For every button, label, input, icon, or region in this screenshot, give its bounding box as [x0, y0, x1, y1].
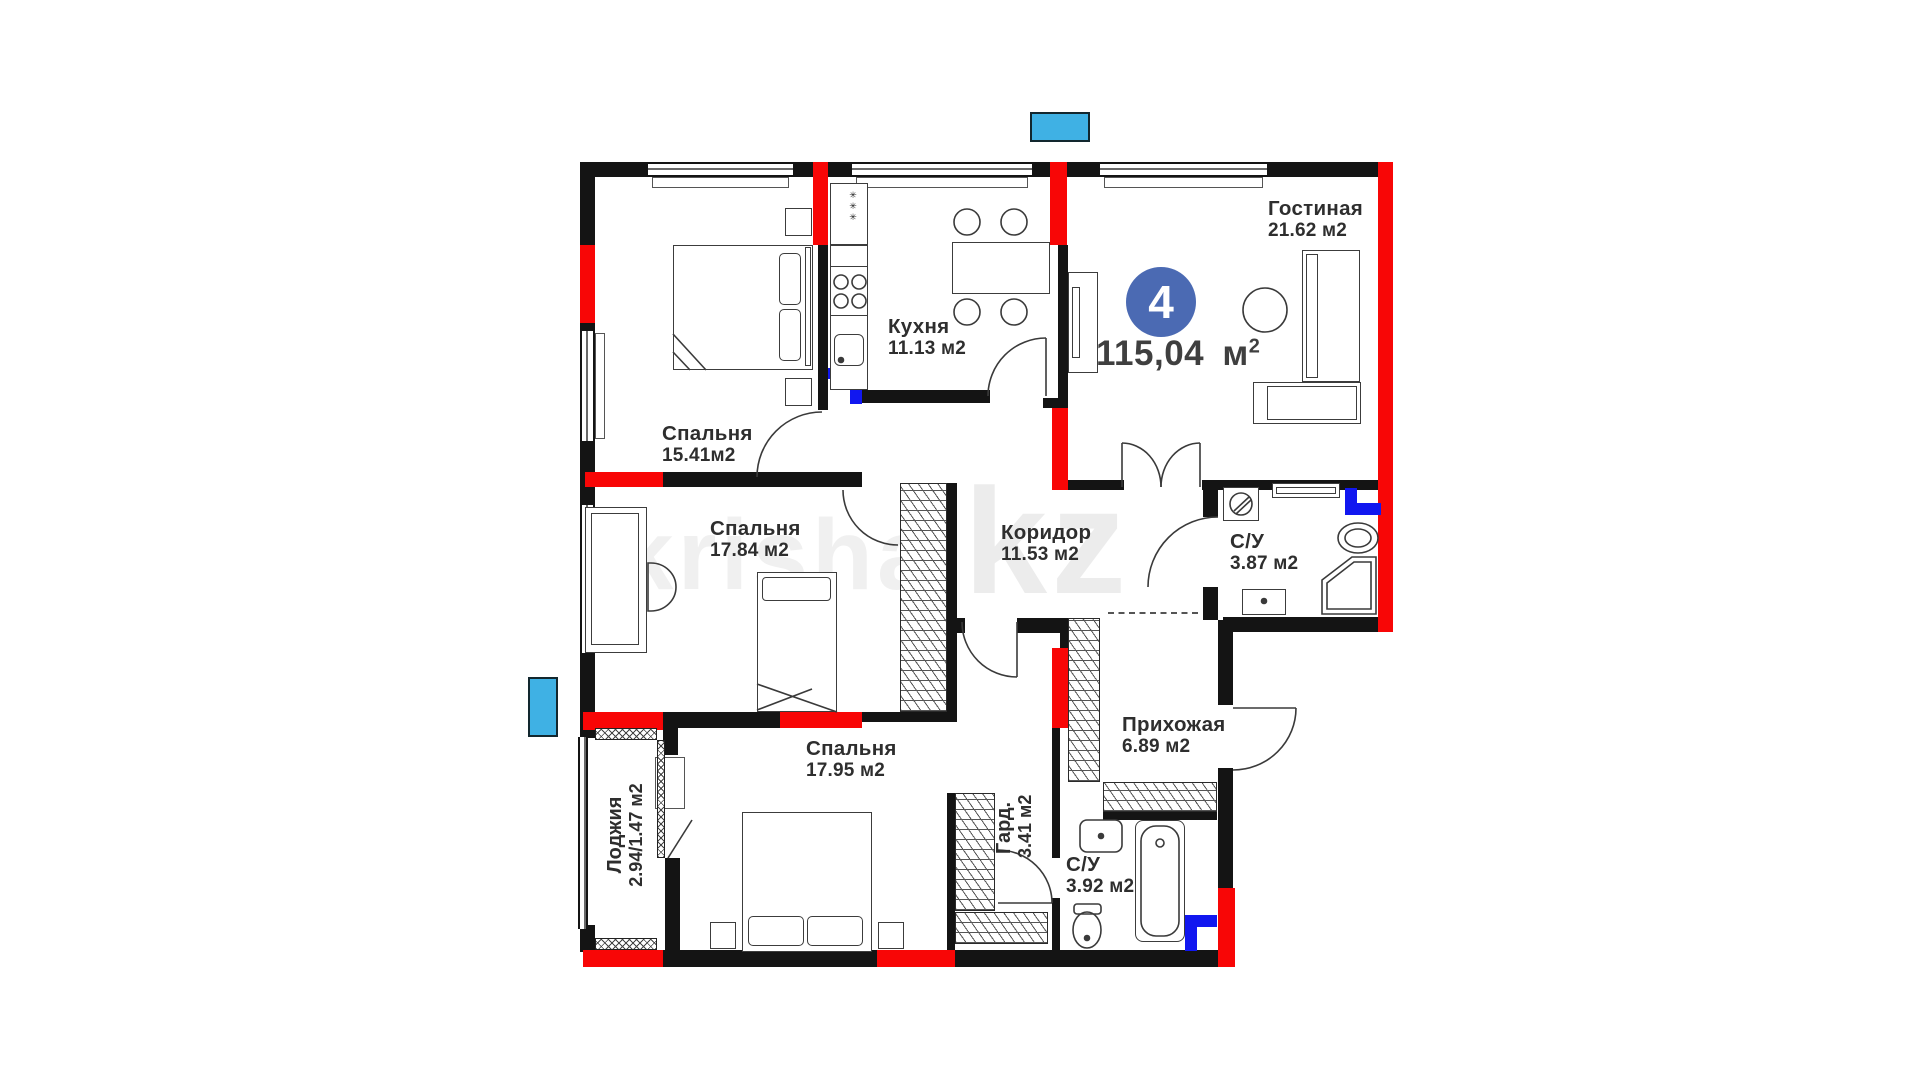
bathroom-sink [1338, 523, 1378, 553]
vent-shaft-top [1030, 112, 1090, 142]
room-area: 17.84 м2 [710, 540, 801, 562]
room-area: 11.13 м2 [888, 338, 966, 360]
total-area: 115,04 м2 [1096, 334, 1260, 374]
red-wall-segment [780, 712, 862, 728]
kitchen-stove [830, 266, 868, 316]
room-area: 11.53 м2 [1001, 544, 1091, 566]
door-arc-bathroom1 [1148, 517, 1218, 587]
room-name: Гард. [994, 798, 1015, 858]
nightstand [710, 922, 736, 949]
room-name: Спальня [806, 738, 897, 760]
dining-chair [1001, 299, 1027, 325]
window-sill [652, 177, 789, 188]
wall-segment [1223, 617, 1393, 632]
vanity-cabinet [1242, 589, 1286, 615]
wall-segment [947, 793, 955, 950]
room-area: 6.89 м2 [1122, 736, 1226, 758]
total-area-value: 115,04 [1096, 334, 1204, 373]
dining-chair [954, 209, 980, 235]
nightstand [785, 378, 812, 406]
pillow [748, 916, 804, 946]
wall-segment [860, 390, 990, 403]
wall-segment [663, 728, 678, 755]
red-wall-segment [1050, 162, 1067, 245]
toilet-tank [1074, 904, 1101, 914]
door-arc-bedroom1 [757, 412, 822, 477]
bathroom-niche-inner [1276, 487, 1336, 494]
room-label-bedroom1: Спальня 15.41м2 [662, 423, 753, 467]
sink-dot [1099, 834, 1104, 839]
floor-plan-image: krisha .kz [0, 0, 1920, 1080]
pillow [762, 577, 831, 601]
wall-segment [580, 162, 650, 177]
dining-table [952, 242, 1050, 294]
bed-headboard [805, 247, 811, 366]
door-arc-entry [1233, 708, 1296, 770]
room-label-bathroom1: С/У 3.87 м2 [1230, 531, 1298, 575]
room-area: 15.41м2 [662, 445, 753, 467]
room-area: 3.41 м2 [1015, 798, 1036, 858]
room-area: 3.87 м2 [1230, 553, 1298, 575]
sofa-back [1306, 254, 1318, 378]
red-wall-segment [1218, 888, 1235, 967]
wall-segment [1052, 898, 1060, 950]
window [852, 162, 1032, 177]
room-label-bedroom3: Спальня 17.95 м2 [806, 738, 897, 782]
room-name: С/У [1230, 531, 1298, 553]
room-name: Гостиная [1268, 198, 1363, 220]
dining-chair [1001, 209, 1027, 235]
wall-segment [1103, 812, 1217, 820]
room-name: Коридор [1001, 522, 1091, 544]
nightstand [878, 922, 904, 949]
closet-hatch-bedroom2 [900, 483, 947, 712]
total-area-sup: 2 [1249, 335, 1261, 357]
red-wall-segment [583, 950, 663, 967]
room-label-loggia: Лоджия 2.94/1.47 м2 [605, 760, 651, 910]
closet-hatch-wardrobe [955, 912, 1048, 944]
pillow [807, 916, 863, 946]
room-label-wardrobe: Гард. 3.41 м2 [994, 798, 1038, 858]
room-area: 17.95 м2 [806, 760, 897, 782]
window [580, 331, 595, 441]
wall-segment [1218, 620, 1233, 705]
wall-segment [1203, 587, 1218, 620]
room-name: Лоджия [605, 760, 626, 910]
room-count-badge: 4 [1126, 267, 1196, 337]
nightstand [785, 208, 812, 236]
loggia-casement-line [668, 820, 692, 858]
toilet-dot [1085, 936, 1090, 941]
wall-segment [580, 177, 595, 245]
vent-symbol: ✳✳✳ [849, 191, 858, 224]
coffee-table [1243, 288, 1287, 332]
corner-shower-inner [1327, 562, 1371, 609]
room-count: 4 [1148, 275, 1174, 329]
room-label-kitchen: Кухня 11.13 м2 [888, 316, 966, 360]
wall-segment [580, 925, 595, 952]
red-wall-segment [585, 472, 663, 487]
vent-shaft-left [528, 677, 558, 737]
loggia-hatched-wall [595, 728, 657, 740]
wall-segment [947, 483, 957, 718]
wall-segment [663, 950, 877, 967]
red-wall-segment [877, 950, 955, 967]
room-label-living: Гостиная 21.62 м2 [1268, 198, 1363, 242]
wall-segment [955, 950, 1218, 967]
wall-segment [1058, 245, 1068, 403]
closet-hatch-hallway [1068, 618, 1100, 782]
closet-hatch-hallway [1103, 782, 1217, 812]
loggia-glazing [578, 737, 588, 929]
wall-segment [1067, 162, 1100, 177]
wall-segment [793, 162, 813, 177]
wall-segment [663, 712, 780, 728]
room-label-bedroom2: Спальня 17.84 м2 [710, 518, 801, 562]
wall-segment [1067, 480, 1124, 490]
room-area: 21.62 м2 [1268, 220, 1363, 242]
pillow [779, 309, 801, 361]
zone-divider-dashed-line [1108, 612, 1198, 617]
room-name: Спальня [710, 518, 801, 540]
door-arc-kitchen [988, 338, 1046, 396]
window-sill [856, 177, 1028, 188]
window [1100, 162, 1267, 177]
toilet-bowl [1073, 912, 1101, 948]
kitchen-sink [834, 334, 864, 366]
wall-segment [580, 653, 595, 713]
wall-segment [1267, 162, 1378, 177]
red-wall-segment [1378, 162, 1393, 632]
room-name: С/У [1066, 854, 1134, 876]
room-area: 2.94/1.47 м2 [626, 760, 647, 910]
bathroom-sink-basin [1345, 529, 1371, 547]
closet-hatch-wardrobe [955, 793, 995, 911]
pillow [779, 253, 801, 305]
wall-segment [663, 472, 862, 487]
red-wall-segment [580, 245, 595, 323]
bathroom-sink [1080, 820, 1122, 852]
red-wall-segment [1052, 648, 1068, 728]
wall-segment [1218, 768, 1233, 888]
loggia-hatched-wall [657, 740, 665, 858]
room-name: Прихожая [1122, 714, 1226, 736]
plumbing-riser [1185, 915, 1197, 951]
wall-segment [1203, 490, 1218, 517]
red-wall-segment [1052, 408, 1068, 490]
wall-segment [818, 245, 828, 410]
total-area-unit: м [1222, 334, 1248, 373]
room-label-hallway: Прихожая 6.89 м2 [1122, 714, 1226, 758]
tv-panel [1072, 287, 1080, 358]
bathtub [1135, 820, 1185, 942]
wall-segment [862, 712, 957, 722]
sofa-chaise-cushion [1267, 386, 1357, 420]
room-name: Спальня [662, 423, 753, 445]
wall-segment [1043, 398, 1068, 408]
wall-segment [828, 162, 852, 177]
room-name: Кухня [888, 316, 966, 338]
door-arc-double-right [1161, 443, 1200, 487]
window-sill [595, 333, 605, 439]
room-area: 3.92 м2 [1066, 876, 1134, 898]
door-arc-bedroom3 [962, 622, 1017, 677]
room-label-corridor: Коридор 11.53 м2 [1001, 522, 1091, 566]
window-sill [1104, 177, 1263, 188]
washing-machine [1223, 487, 1259, 521]
loggia-hatched-wall [595, 938, 657, 950]
corner-shower [1322, 557, 1376, 614]
plumbing-riser [1345, 503, 1381, 515]
wall-segment [1032, 162, 1052, 177]
wall-segment [1052, 728, 1060, 858]
red-wall-segment [813, 162, 828, 245]
wall-segment [665, 858, 680, 952]
desk-top [591, 513, 639, 645]
window [648, 162, 793, 177]
wall-segment [957, 618, 965, 633]
room-label-bathroom2: С/У 3.92 м2 [1066, 854, 1134, 898]
